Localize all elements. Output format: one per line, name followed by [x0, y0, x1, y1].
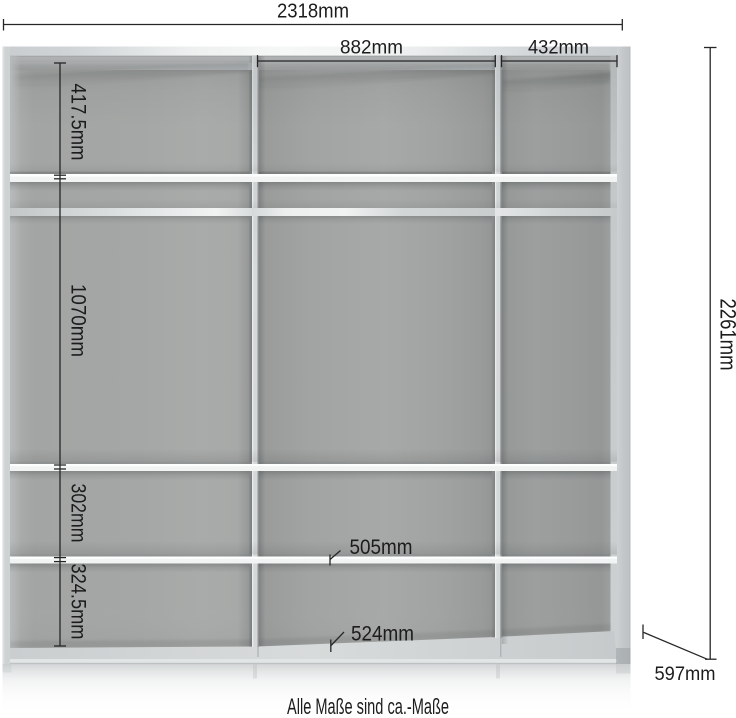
svg-text:2318mm: 2318mm	[277, 1, 349, 23]
svg-text:505mm: 505mm	[350, 536, 413, 559]
svg-text:882mm: 882mm	[340, 38, 403, 59]
svg-text:432mm: 432mm	[528, 38, 589, 59]
svg-text:1070mm: 1070mm	[67, 284, 90, 357]
svg-text:2261mm: 2261mm	[716, 299, 736, 371]
svg-text:302mm: 302mm	[67, 484, 90, 543]
svg-text:324.5mm: 324.5mm	[67, 564, 90, 640]
svg-text:417.5mm: 417.5mm	[67, 84, 90, 161]
svg-text:Alle Maße sind ca.-Maße: Alle Maße sind ca.-Maße	[287, 694, 449, 718]
svg-text:524mm: 524mm	[351, 623, 414, 646]
svg-text:597mm: 597mm	[655, 664, 716, 685]
